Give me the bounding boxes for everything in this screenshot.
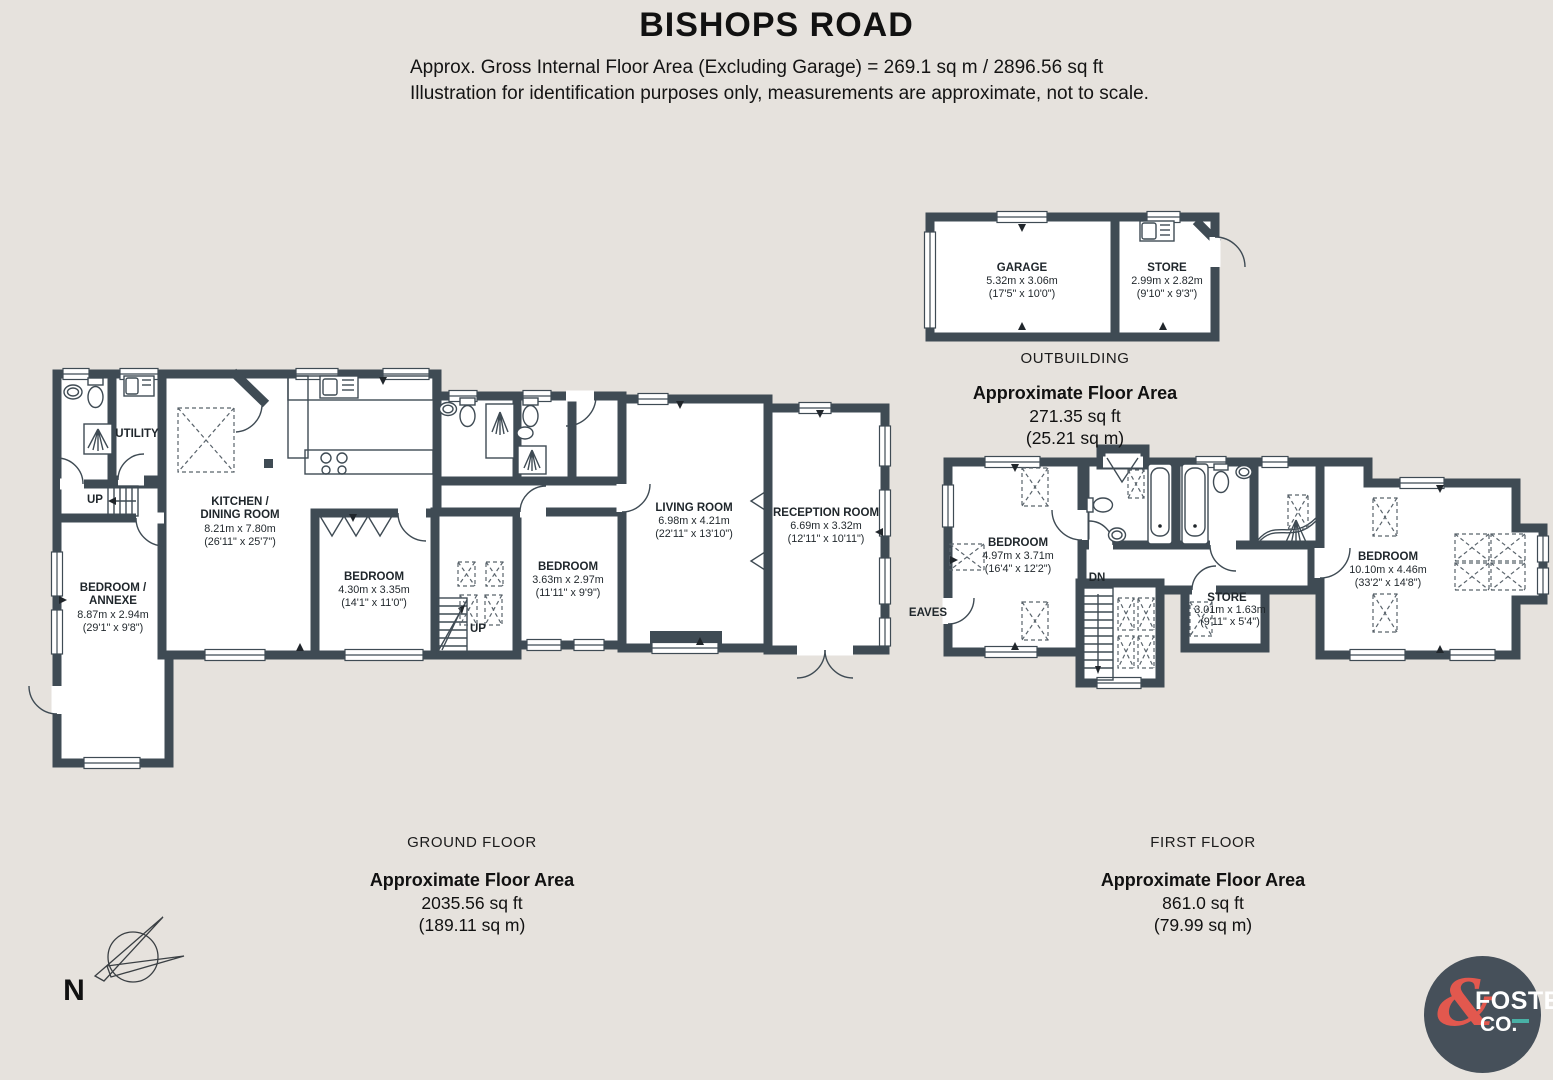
living-metric: 6.98m x 4.21m [658,515,729,527]
reception-name: RECEPTION ROOM [773,507,879,519]
first-floor-area-heading: Approximate Floor Area [1053,870,1353,891]
bedroom1-name: BEDROOM [344,571,404,583]
compass-rose: N [63,917,184,1007]
compass-north-label: N [63,974,85,1007]
ob-store-name: STORE [1147,262,1187,274]
outbuilding-area-m: (25.21 sq m) [925,428,1225,450]
outbuilding-label: OUTBUILDING [925,350,1225,367]
first-floor-label: FIRST FLOOR [1053,834,1353,851]
kitchen-metric: 8.21m x 7.80m [204,523,275,535]
ob-store-imperial: (9'10" x 9'3") [1137,288,1197,300]
bedroom2-name: BEDROOM [538,561,598,573]
utility-sink-icon [124,376,154,396]
ob-store-metric: 2.99m x 2.82m [1131,275,1202,287]
living-name: LIVING ROOM [655,502,732,514]
ff-bedroom-left-name: BEDROOM [988,537,1048,549]
subtitle-line-1: Approx. Gross Internal Floor Area (Exclu… [410,55,1149,81]
ground-floor-label: GROUND FLOOR [322,834,622,851]
ff-store-metric: 3.01m x 1.63m [1194,604,1265,616]
ground-floor-area: Approximate Floor Area 2035.56 sq ft (18… [322,870,622,936]
ff-bedroom-right-metric: 10.10m x 4.46m [1349,564,1426,576]
ff-store-imperial: (9'11" x 5'4") [1200,616,1260,628]
annexe-imperial: (29'1" x 9'8") [83,622,143,634]
ground-floor-plan: UTILITY UP UP BEDROOM / ANNEXE 8.87m x 2… [29,369,891,769]
kitchen-name-2: DINING ROOM [200,509,279,521]
foster-co-logo: & FOSTER CO. [1424,956,1541,1073]
ff-bedroom-right-name: BEDROOM [1358,551,1418,563]
kitchen-sink-icon [320,376,358,398]
logo-name: FOSTER [1475,987,1553,1016]
compass-needle-e [107,956,184,977]
up-annexe-label: UP [87,494,103,506]
first-floor-area: Approximate Floor Area 861.0 sq ft (79.9… [1053,870,1353,936]
first-floor-area-ft: 861.0 sq ft [1053,893,1353,915]
room-entrance-hall [572,396,622,481]
outbuilding-area: Approximate Floor Area 271.35 sq ft (25.… [925,383,1225,449]
room-ff-bedroom-right [1320,462,1543,655]
ground-floor-area-ft: 2035.56 sq ft [322,893,622,915]
gf-bay-window [652,643,718,654]
annexe-metric: 8.87m x 2.94m [77,609,148,621]
annexe-name-2: ANNEXE [89,595,137,607]
first-floor-plan: BEDROOM 4.97m x 3.71m (16'4" x 12'2") DN… [909,449,1549,689]
logo-teal-accent [1512,1019,1529,1023]
subtitle-line-2: Illustration for identification purposes… [410,81,1149,107]
up-main-label: UP [470,623,486,635]
annexe-name-1: BEDROOM / [80,582,147,594]
ground-floor-area-heading: Approximate Floor Area [322,870,622,891]
ob-store-sink-icon [1140,221,1174,241]
bedroom2-metric: 3.63m x 2.97m [532,574,603,586]
ff-eaves-label: EAVES [909,607,947,619]
ff-bedroom-left-metric: 4.97m x 3.71m [982,550,1053,562]
ff-bedroom-right-imperial: (33'2" x 14'8") [1355,577,1421,589]
utility-label: UTILITY [115,428,159,440]
ff-bedroom-left-imperial: (16'4" x 12'2") [985,563,1051,575]
outbuilding-plan: GARAGE 5.32m x 3.06m (17'5" x 10'0") STO… [925,212,1246,338]
bedroom2-imperial: (11'11" x 9'9") [536,587,601,599]
logo-suffix: CO. [1480,1013,1517,1037]
reception-imperial: (12'11" x 10'11") [788,533,865,545]
room-bedroom-annexe [57,518,169,763]
kitchen-post [264,459,273,468]
garage-imperial: (17'5" x 10'0") [989,288,1055,300]
floorplan-page: UTILITY UP UP BEDROOM / ANNEXE 8.87m x 2… [0,0,1553,1080]
outbuilding-area-ft: 271.35 sq ft [925,406,1225,428]
living-imperial: (22'11" x 13'10") [655,528,733,540]
kitchen-imperial: (26'11" x 25'7") [204,536,276,548]
bedroom1-imperial: (14'1" x 11'0") [341,597,407,609]
page-title: BISHOPS ROAD [0,6,1553,45]
first-floor-area-m: (79.99 sq m) [1053,915,1353,937]
kitchen-name-1: KITCHEN / [211,496,269,508]
garage-name: GARAGE [997,262,1048,274]
ground-floor-area-m: (189.11 sq m) [322,915,622,937]
garage-metric: 5.32m x 3.06m [986,275,1057,287]
bedroom1-metric: 4.30m x 3.35m [338,584,409,596]
header-subtitle: Approx. Gross Internal Floor Area (Exclu… [410,55,1149,107]
outbuilding-area-heading: Approximate Floor Area [925,383,1225,404]
ff-store-name: STORE [1207,592,1247,604]
ff-dn-label: DN [1089,572,1106,584]
reception-metric: 6.69m x 3.32m [790,520,861,532]
